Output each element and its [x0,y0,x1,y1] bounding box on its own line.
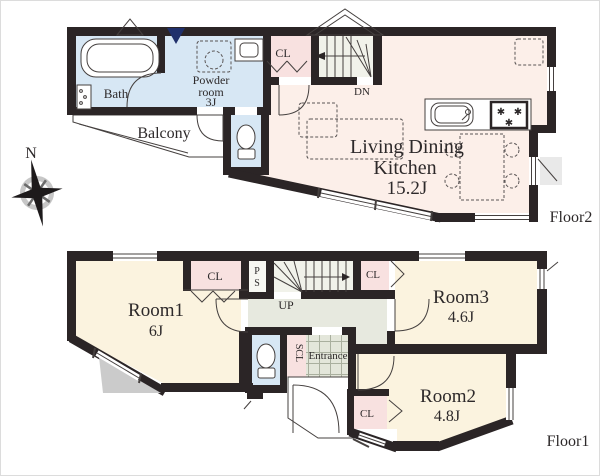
powder-room-label-3: 3J [206,95,217,109]
room3-bottom-wall [348,344,547,354]
balcony-label: Balcony [137,125,190,142]
shower-panel [77,85,91,109]
toilet1-left-wall [245,327,252,393]
room1-size-label: 6J [149,323,163,340]
floor2-window-bottom [475,213,529,222]
floor1-wall-top-c [465,251,547,261]
toilet2-right-wall [261,107,269,175]
floor-plan-page: ✱ ✱ ✱ Bath Powder room 3J CL Balcony DN … [0,0,600,476]
room1-label: Room1 [128,300,184,321]
floor1-wall-left [67,251,76,341]
toilet1-bottom-wall [245,385,287,393]
north-label: N [25,145,37,162]
stairs-up-label: UP [278,298,294,312]
stairs-down-label: DN [354,86,370,98]
stairs-right-wall [373,27,382,85]
floor2-closet-label: CL [275,46,290,60]
room2-closet-left-wall [347,389,354,435]
pipe-space-bottom-wall [241,292,274,299]
shoe-closet-label: SCL [293,344,304,362]
ldk-size-label: 15.2J [387,178,428,199]
floor2-wall-left [67,27,76,115]
burner-icon: ✱ [497,107,505,118]
meter-box [247,393,263,399]
floor1-wall-top-b [157,251,419,261]
pipe-space-label-p: P [254,266,260,277]
toilet1-right-wall [280,327,287,393]
compass-rose-icon [5,155,68,231]
compass: N [5,145,68,231]
hall-floor-b [356,299,387,344]
stove: ✱ ✱ ✱ [491,102,527,129]
room2-closet-label: CL [360,408,374,420]
room1-closet-label: CL [207,269,222,283]
toilet2-left-wall [223,107,231,175]
floor1-label: Floor1 [547,433,590,450]
floor2-window-right-upper [547,67,556,91]
room3-right-wall-a [537,251,547,269]
floor1-stairs-right-wall [353,251,361,293]
room2-right-window [506,388,516,420]
floor1-plan: Room1 6J CL P S UP CL Room3 4.6J SCL Ent… [67,251,589,451]
room3-right-wall-b [537,289,547,354]
room2-size-label: 4.8J [434,408,460,425]
floor2-window-right-lower [529,157,562,185]
closet-stairs-divider [311,36,319,85]
toilet1-fixture [257,344,275,378]
room1-top-window [113,251,157,261]
room3-closet-label: CL [366,269,380,281]
floor-plan-drawing: ✱ ✱ ✱ Bath Powder room 3J CL Balcony DN … [1,1,600,476]
entrance-right-wall [348,327,356,389]
ldk-label-1: Living Dining [350,136,464,158]
floor2-label: Floor2 [550,209,593,226]
powder-right-wall [263,36,271,115]
burner-icon: ✱ [505,118,513,129]
room3-size-label: 4.6J [448,309,474,326]
room3-left-wall-a [387,290,395,299]
stairs-bottom-wall [319,77,357,85]
burner-icon: ✱ [514,107,522,118]
vanity-sink [235,39,263,61]
entrance-label: Entrance [308,350,347,362]
room2-bottom-wall [393,441,439,451]
floor2-plan: ✱ ✱ ✱ Bath Powder room 3J CL Balcony DN … [67,9,592,226]
room2-right-wall [506,354,516,388]
pipe-space-label-s: S [254,278,260,289]
ldk-label-2: Kitchen [373,157,436,179]
floor1-stairs-bottom-wall [301,290,393,299]
room1-closet-left-wall [183,261,191,291]
room3-label: Room3 [433,287,489,308]
balcony-door-swing [197,115,223,141]
bathtub [81,39,159,77]
closet-bottom-wall-a [263,77,279,85]
bath-label: Bath [104,86,129,101]
room2-label: Room2 [420,386,476,407]
room3-top-window [419,251,465,261]
toilet2-fixture [237,125,255,159]
